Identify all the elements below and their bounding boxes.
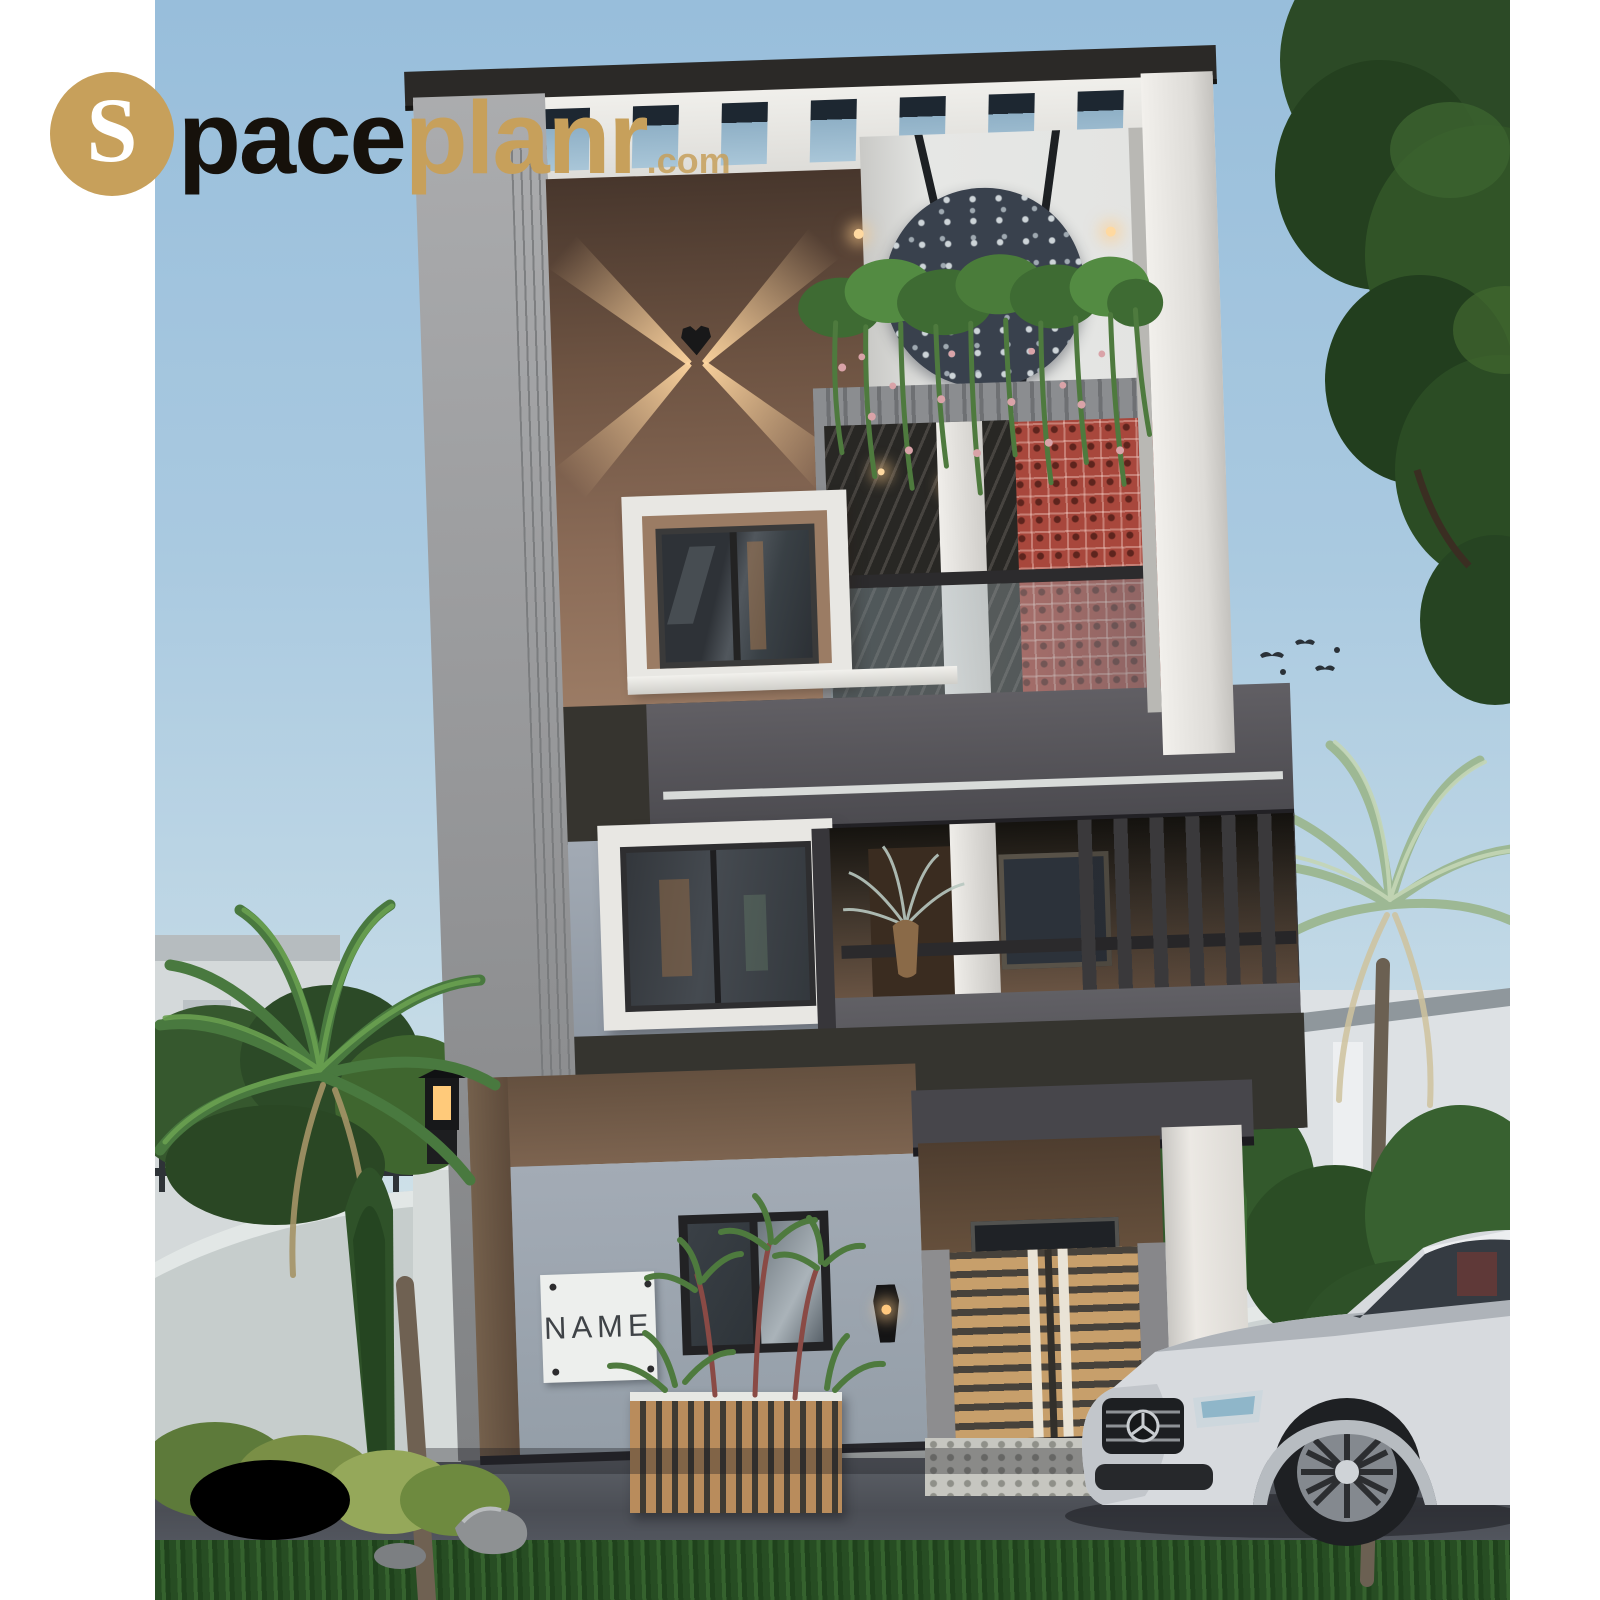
logo-wordmark: paceplanr.com (178, 86, 731, 189)
logo-text-gold: planr (405, 86, 647, 189)
architectural-render-photo: NAME (155, 0, 1510, 1600)
front-plants (610, 1196, 883, 1398)
car-intake (1095, 1464, 1213, 1490)
logo-tld: .com (647, 143, 731, 179)
foreground-scenery (155, 0, 1510, 1600)
logo-badge-icon: S (50, 72, 174, 196)
car-seats (1457, 1252, 1497, 1296)
page: NAME (0, 0, 1600, 1600)
logo-text-black: pace (178, 86, 405, 189)
brand-logo: S paceplanr.com (50, 72, 731, 196)
logo-badge-letter: S (86, 77, 137, 183)
bushes (155, 1422, 510, 1540)
car (1065, 1230, 1510, 1546)
